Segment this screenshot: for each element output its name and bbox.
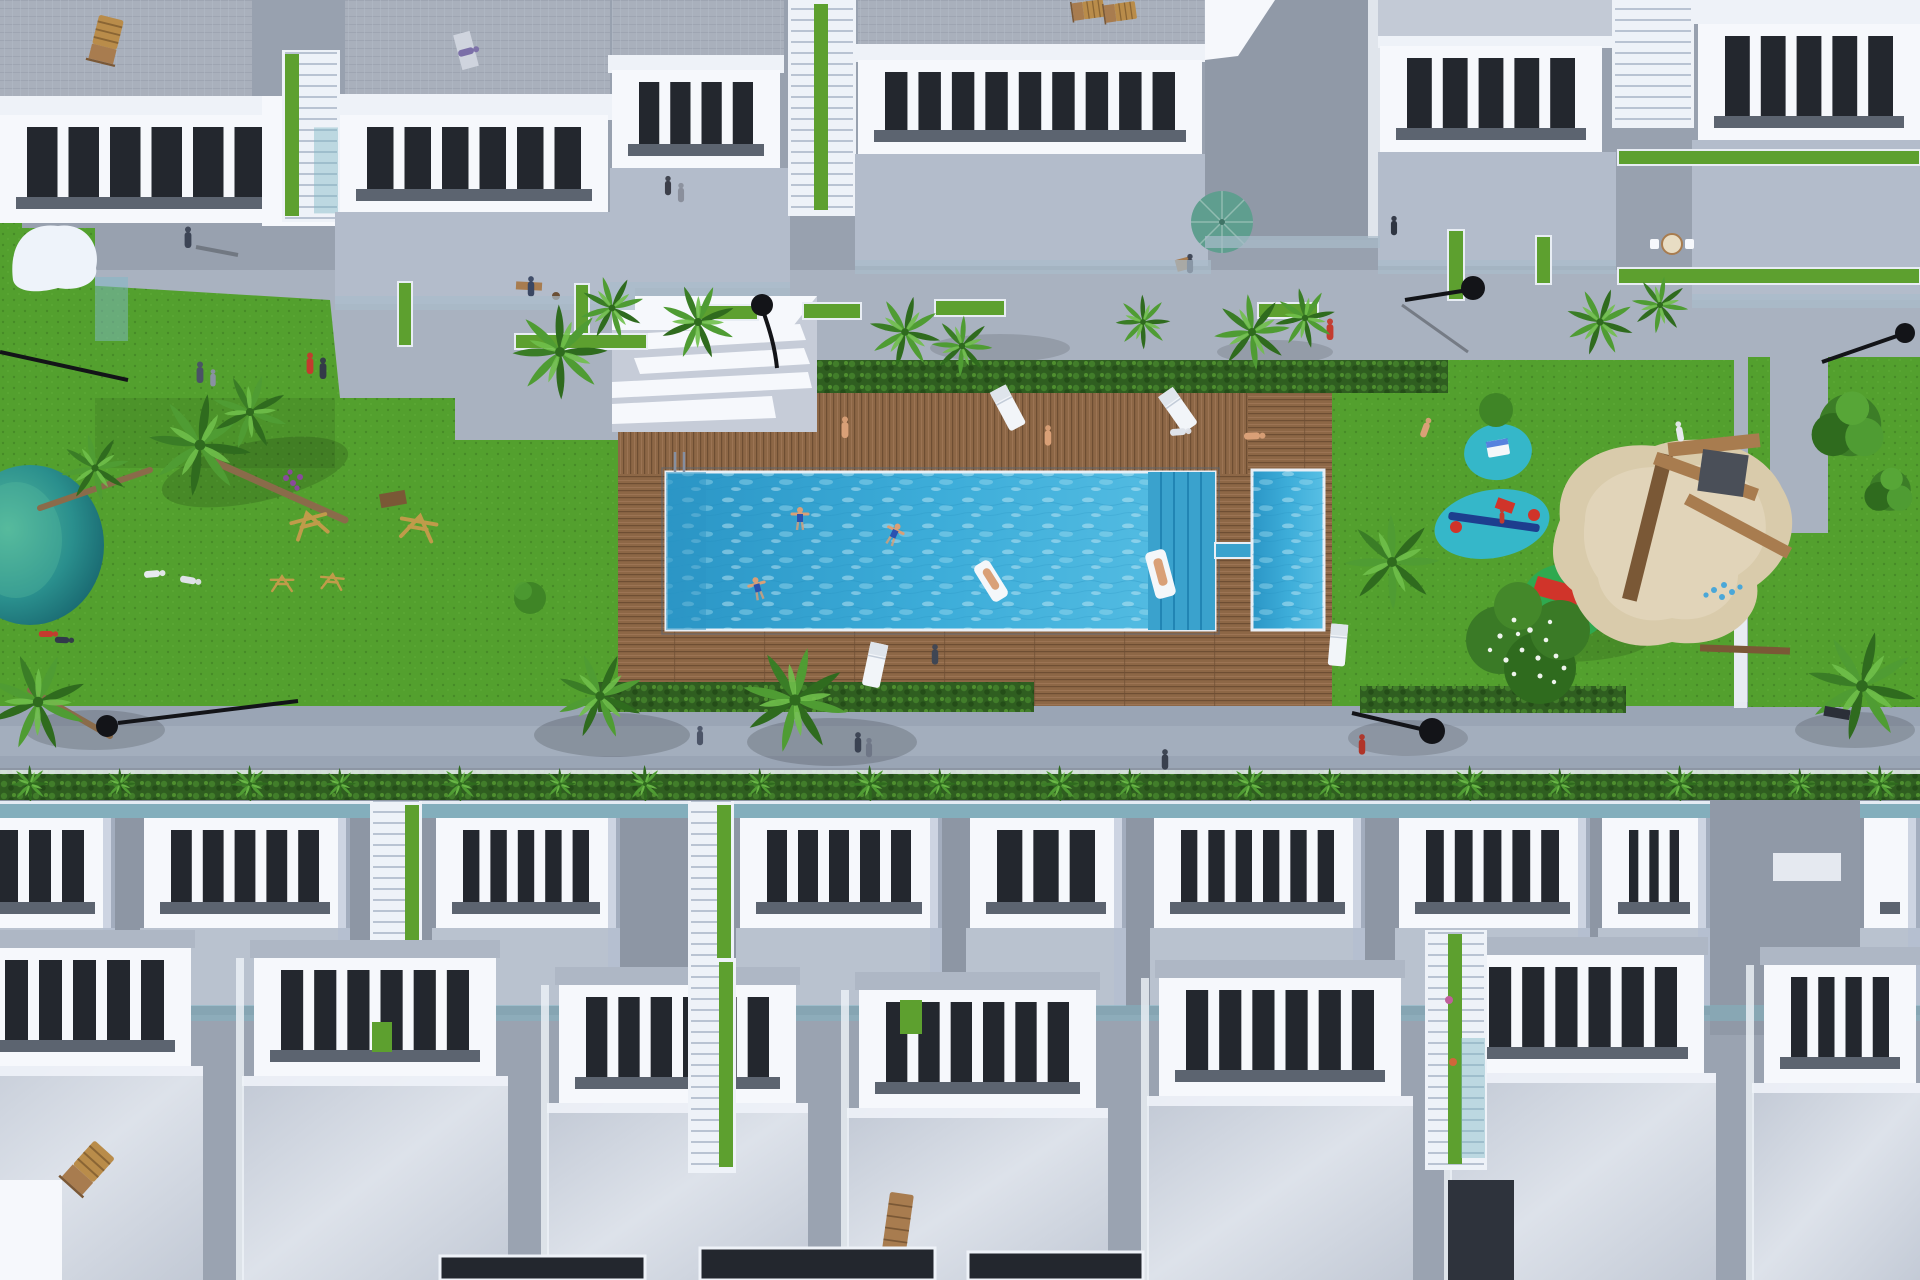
baluster xyxy=(787,830,798,902)
balcony-floor xyxy=(1170,902,1345,914)
baluster xyxy=(130,960,141,1040)
flower-bush xyxy=(1494,582,1542,630)
pool-channel xyxy=(1215,543,1253,558)
balcony-floor xyxy=(1714,116,1904,128)
terrace-wall xyxy=(855,972,1100,990)
baluster xyxy=(1008,72,1019,130)
lamp-head xyxy=(1895,323,1915,343)
baluster xyxy=(607,997,618,1077)
roof-terrace xyxy=(612,0,784,60)
balcony-interior xyxy=(874,72,1186,130)
baluster xyxy=(1275,990,1286,1070)
baluster xyxy=(99,127,110,197)
baluster xyxy=(1279,830,1290,902)
person xyxy=(678,183,684,202)
terrace xyxy=(855,154,1208,266)
lamp-head xyxy=(1461,276,1485,300)
baluster xyxy=(1208,990,1219,1070)
stair-green-strip xyxy=(285,54,299,216)
baluster xyxy=(1069,1002,1080,1082)
balcony-interior xyxy=(160,830,330,902)
baluster xyxy=(1197,830,1208,902)
climb-cube xyxy=(1697,449,1748,497)
baluster xyxy=(628,82,639,144)
stair-rail xyxy=(282,50,285,222)
baluster xyxy=(452,830,463,902)
garden-strip xyxy=(372,1022,392,1052)
balcony-floor xyxy=(1780,1057,1900,1069)
baluster xyxy=(1308,990,1319,1070)
lounger xyxy=(1328,623,1349,666)
baluster xyxy=(1578,967,1589,1047)
balcony-floor xyxy=(1618,902,1690,914)
baluster xyxy=(940,1002,951,1082)
planter-row xyxy=(0,770,1920,800)
party-wall xyxy=(841,990,849,1280)
stair-green-strip xyxy=(1448,934,1462,1164)
render-layers xyxy=(0,0,1920,1280)
baluster xyxy=(1821,36,1832,116)
balcony-floor xyxy=(986,902,1106,914)
roof-edge xyxy=(855,44,1211,62)
baluster xyxy=(691,82,702,144)
lamp-head xyxy=(1419,718,1445,744)
baluster xyxy=(1175,72,1186,130)
baluster xyxy=(1095,830,1106,902)
balcony-rail xyxy=(1154,914,1361,928)
baluster xyxy=(1857,36,1868,116)
terrace-wall xyxy=(1155,960,1405,978)
walking-person xyxy=(320,358,327,380)
stair-steps xyxy=(1612,0,1694,128)
walking-person xyxy=(1327,319,1334,341)
baluster xyxy=(1468,58,1479,128)
baluster xyxy=(1750,36,1761,116)
baluster xyxy=(1334,830,1345,902)
baluster xyxy=(0,960,5,1040)
pedestrian xyxy=(697,726,703,745)
baluster xyxy=(1714,36,1725,116)
terrace-wall xyxy=(250,940,500,958)
roof-edge xyxy=(1752,1083,1920,1093)
baluster xyxy=(1396,58,1407,128)
baluster xyxy=(1432,58,1443,128)
deck-sitter xyxy=(932,644,938,664)
baluster xyxy=(1444,830,1455,902)
party-wall xyxy=(541,985,549,1280)
baluster xyxy=(1415,830,1426,902)
baluster xyxy=(356,127,367,189)
baluster xyxy=(224,127,235,197)
baluster xyxy=(403,970,414,1050)
planter-curb xyxy=(0,770,1920,774)
baluster xyxy=(1677,967,1688,1047)
stair-green-strip xyxy=(719,962,733,1167)
baluster xyxy=(1544,967,1555,1047)
pedestrian xyxy=(1162,749,1168,769)
baluster xyxy=(58,127,69,197)
baluster xyxy=(469,970,480,1050)
party-wall xyxy=(236,958,244,1280)
balcony-rail xyxy=(559,1089,796,1103)
baluster xyxy=(1659,830,1670,902)
baluster xyxy=(164,960,175,1040)
balcony-rail xyxy=(740,914,938,928)
stair-flowers xyxy=(1449,1058,1457,1066)
balcony-floor xyxy=(1478,1047,1688,1059)
baluster xyxy=(1511,967,1522,1047)
balcony-floor xyxy=(0,902,95,914)
baluster xyxy=(534,830,545,902)
balcony-interior xyxy=(0,960,175,1040)
lawn-bush-light xyxy=(514,582,532,600)
row3-window xyxy=(700,1248,935,1280)
balcony-interior xyxy=(1415,830,1570,902)
baluster xyxy=(141,127,152,197)
balcony-interior xyxy=(0,830,95,902)
baluster xyxy=(507,830,518,902)
baluster xyxy=(659,82,670,144)
glass-panel xyxy=(95,277,128,341)
balcony-rail xyxy=(0,1052,191,1066)
baluster xyxy=(506,127,517,189)
balcony-rail xyxy=(436,914,616,928)
baluster xyxy=(756,830,767,902)
baluster xyxy=(1893,36,1904,116)
terrace-glass xyxy=(1692,294,1920,308)
party-wall xyxy=(1746,965,1754,1280)
baluster xyxy=(911,830,922,902)
balcony-rail xyxy=(1698,128,1920,142)
baluster xyxy=(1473,830,1484,902)
balcony-rail xyxy=(254,1062,496,1076)
balcony-rail xyxy=(1462,1059,1704,1073)
roof-edge xyxy=(1450,1073,1716,1083)
roof-edge xyxy=(0,1066,203,1076)
baluster xyxy=(319,830,330,902)
terrace-glass xyxy=(855,260,1211,274)
balcony-floor xyxy=(628,144,764,156)
baluster xyxy=(96,960,107,1040)
baluster xyxy=(575,997,586,1077)
baluster xyxy=(394,127,405,189)
big-roof xyxy=(1752,1083,1920,1280)
roof-band xyxy=(1378,0,1616,42)
baluster xyxy=(287,830,298,902)
road-highlight xyxy=(0,726,1920,756)
baluster xyxy=(1644,967,1655,1047)
terrace-wall xyxy=(1458,937,1708,955)
baluster xyxy=(1786,36,1797,116)
balcony-rail xyxy=(1159,1082,1401,1096)
planter-strip xyxy=(1618,150,1920,165)
baluster xyxy=(875,1002,886,1082)
garden-strip xyxy=(900,1000,922,1034)
balcony-interior xyxy=(986,830,1106,902)
glass-row-edge xyxy=(0,801,1920,804)
aerial-residential-render xyxy=(0,0,1920,1280)
hedge-top xyxy=(788,360,1448,393)
big-roof xyxy=(242,1076,508,1280)
balcony-floor xyxy=(0,1040,175,1052)
grass-strip xyxy=(1536,236,1551,284)
baluster xyxy=(1835,977,1846,1057)
baluster xyxy=(544,127,555,189)
baluster xyxy=(1889,977,1900,1057)
deck-sunbather xyxy=(1244,432,1266,440)
baluster xyxy=(1170,830,1181,902)
baluster xyxy=(51,830,62,902)
balcony-rail xyxy=(1380,140,1602,154)
pad-kid xyxy=(1500,509,1505,524)
hedge-bottom-right xyxy=(1360,686,1626,713)
baluster xyxy=(1559,830,1570,902)
baluster xyxy=(1501,830,1512,902)
terrace-glass xyxy=(1378,260,1616,274)
grass-strip xyxy=(935,300,1005,316)
baluster xyxy=(436,970,447,1050)
baluster xyxy=(722,82,733,144)
stair-glass xyxy=(1461,1038,1485,1158)
baluster xyxy=(849,830,860,902)
baluster xyxy=(737,997,748,1077)
baluster xyxy=(1780,977,1791,1057)
balcony-interior xyxy=(452,830,600,902)
baluster xyxy=(1862,977,1873,1057)
lamp-head xyxy=(96,715,118,737)
baluster xyxy=(182,127,193,197)
baluster xyxy=(1618,830,1629,902)
roof-terrace xyxy=(0,0,252,100)
pedestrian xyxy=(866,738,872,757)
kids-pool-ripple xyxy=(1252,470,1324,630)
baluster xyxy=(1175,990,1186,1070)
baluster xyxy=(1142,72,1153,130)
stair-rail xyxy=(788,0,791,216)
terrace-glass xyxy=(610,282,790,296)
baluster xyxy=(1307,830,1318,902)
pool-deep-shade xyxy=(666,472,706,630)
balcony-floor xyxy=(1415,902,1570,914)
baluster xyxy=(1611,967,1622,1047)
baluster xyxy=(1889,830,1900,902)
baluster xyxy=(28,960,39,1040)
stair-rail xyxy=(733,958,736,1173)
stair-rail xyxy=(1612,0,1615,128)
stair-green-strip xyxy=(814,4,828,210)
baluster xyxy=(270,970,281,1050)
balcony-rail xyxy=(859,1094,1096,1108)
balcony-rail xyxy=(1602,914,1706,928)
round-bush xyxy=(1479,393,1513,427)
baluster xyxy=(907,72,918,130)
baluster xyxy=(1575,58,1586,128)
seated-person xyxy=(528,276,534,296)
terrace-wall xyxy=(1760,947,1920,965)
baluster xyxy=(1059,830,1070,902)
court-stair xyxy=(1773,853,1841,881)
baluster xyxy=(581,127,592,189)
walking-person xyxy=(197,362,204,384)
balcony-rail xyxy=(1764,1069,1916,1083)
baluster xyxy=(1539,58,1550,128)
baluster xyxy=(1108,72,1119,130)
baluster xyxy=(672,997,683,1077)
balcony-rail xyxy=(0,914,111,928)
baluster xyxy=(1530,830,1541,902)
terrace xyxy=(610,168,790,288)
baluster xyxy=(1503,58,1514,128)
baluster xyxy=(1225,830,1236,902)
pedestrian xyxy=(855,732,861,752)
baluster xyxy=(562,830,573,902)
pedestrian xyxy=(1359,734,1365,754)
row3-stair xyxy=(1448,1180,1514,1280)
baluster xyxy=(84,830,95,902)
balcony-floor xyxy=(756,902,922,914)
roof-terrace xyxy=(858,0,1208,48)
roof-edge xyxy=(1147,1096,1413,1106)
balcony-interior xyxy=(1714,36,1904,116)
balcony-floor xyxy=(452,902,600,914)
baluster xyxy=(1252,830,1263,902)
balcony-floor xyxy=(16,197,276,209)
baluster xyxy=(880,830,891,902)
balcony-rail xyxy=(1399,914,1586,928)
tree-shadow xyxy=(747,718,917,766)
baluster xyxy=(1638,830,1649,902)
roof-edge xyxy=(847,1108,1108,1118)
balcony-rail xyxy=(970,914,1122,928)
stair-rail xyxy=(688,958,691,1173)
balcony-interior xyxy=(756,830,922,902)
party-wall xyxy=(1141,978,1149,1280)
terrace-wall xyxy=(0,930,195,948)
baluster xyxy=(1341,990,1352,1070)
balcony-floor xyxy=(1175,1070,1385,1082)
stair-glass xyxy=(314,127,338,213)
baluster xyxy=(62,960,73,1040)
lying-person xyxy=(39,631,58,637)
baluster xyxy=(192,830,203,902)
balcony-floor xyxy=(160,902,330,914)
balcony-floor xyxy=(874,130,1186,142)
terrace-wall xyxy=(555,967,800,985)
baluster xyxy=(1004,1002,1015,1082)
baluster xyxy=(1241,990,1252,1070)
walking-person xyxy=(185,227,192,249)
baluster xyxy=(874,72,885,130)
baluster xyxy=(640,997,651,1077)
baluster xyxy=(589,830,600,902)
balcony-floor xyxy=(1396,128,1586,140)
baluster xyxy=(303,970,314,1050)
balcony-rail xyxy=(858,142,1202,156)
baluster xyxy=(1037,1002,1048,1082)
baluster xyxy=(160,830,171,902)
baluster xyxy=(974,72,985,130)
baluster xyxy=(469,127,480,189)
terrace-glass xyxy=(1205,236,1380,248)
roof-edge xyxy=(547,1103,808,1113)
roof-edge xyxy=(1692,0,1920,24)
side-shade xyxy=(1114,818,1126,1006)
lamp-head xyxy=(751,294,773,316)
baluster xyxy=(1374,990,1385,1070)
stair-rail xyxy=(1425,930,1428,1170)
baluster xyxy=(255,830,266,902)
baluster xyxy=(1022,830,1033,902)
row3-window xyxy=(440,1256,645,1280)
balcony-interior xyxy=(1396,58,1586,128)
balcony-rail xyxy=(144,914,346,928)
scene-canvas xyxy=(0,0,1920,1280)
baluster xyxy=(18,830,29,902)
grass-strip xyxy=(398,282,412,346)
baluster xyxy=(818,830,829,902)
canopy-blob xyxy=(12,225,97,291)
stair-flowers xyxy=(1445,996,1453,1004)
baluster xyxy=(986,830,997,902)
baluster xyxy=(1679,830,1690,902)
balcony-rail xyxy=(0,209,292,223)
balcony-floor xyxy=(1880,902,1900,914)
baluster xyxy=(336,970,347,1050)
baluster xyxy=(753,82,764,144)
baluster xyxy=(431,127,442,189)
baluster xyxy=(1041,72,1052,130)
person xyxy=(1391,216,1397,235)
row3-window xyxy=(968,1252,1143,1280)
deck-walker xyxy=(842,417,849,439)
baluster xyxy=(972,1002,983,1082)
corner-wall xyxy=(0,1180,62,1280)
balcony-floor xyxy=(575,1077,780,1089)
roof-edge xyxy=(242,1076,508,1086)
baluster xyxy=(941,72,952,130)
lying-person xyxy=(55,637,75,644)
baluster xyxy=(1807,977,1818,1057)
big-roof xyxy=(1147,1096,1413,1280)
layer-row2-houses xyxy=(0,930,1920,1280)
baluster xyxy=(16,127,27,197)
baluster xyxy=(1075,72,1086,130)
balcony-floor xyxy=(356,189,592,201)
walking-person xyxy=(210,369,215,386)
seesaw-seat xyxy=(1450,521,1462,533)
terrace xyxy=(1378,152,1616,266)
baluster xyxy=(479,830,490,902)
main-pool-ripple xyxy=(666,472,1215,630)
baluster xyxy=(769,997,780,1077)
baluster xyxy=(224,830,235,902)
seesaw-seat xyxy=(1528,509,1540,521)
person xyxy=(665,176,671,195)
balcony-rail xyxy=(612,156,780,170)
grass-strip xyxy=(803,303,861,319)
walking-person xyxy=(307,353,314,375)
walk-corner xyxy=(455,392,618,440)
deck-walker xyxy=(1045,425,1051,445)
balcony-floor xyxy=(875,1082,1080,1094)
